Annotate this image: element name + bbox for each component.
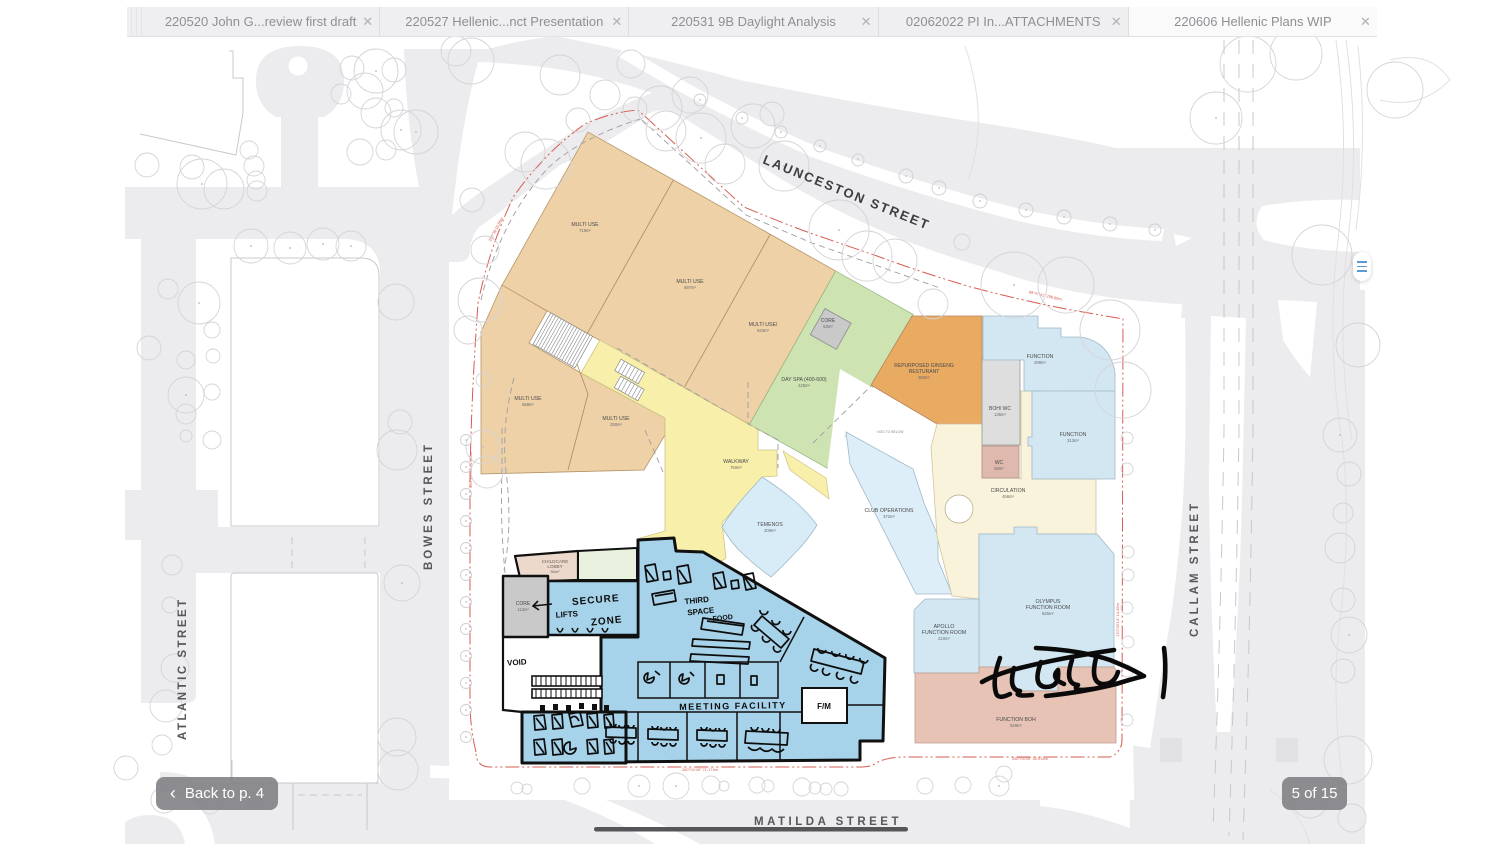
svg-text:CALLAM STREET: CALLAM STREET bbox=[1189, 501, 1201, 637]
svg-text:MATILDA STREET: MATILDA STREET bbox=[754, 816, 902, 828]
svg-text:53m²: 53m² bbox=[823, 324, 833, 329]
svg-text:425m²: 425m² bbox=[798, 383, 810, 388]
svg-text:210m²: 210m² bbox=[938, 636, 950, 641]
svg-text:528m²: 528m² bbox=[1010, 723, 1022, 728]
svg-text:260°04'45" 45.916m: 260°04'45" 45.916m bbox=[1012, 756, 1049, 761]
svg-text:209m²: 209m² bbox=[764, 528, 776, 533]
svg-text:BOWES STREET: BOWES STREET bbox=[423, 442, 435, 570]
svg-text:260°04'45" 71.174m: 260°04'45" 71.174m bbox=[682, 767, 719, 772]
svg-text:523m²: 523m² bbox=[757, 328, 769, 333]
svg-text:170°36'14" 14.05m: 170°36'14" 14.05m bbox=[1115, 602, 1120, 636]
svg-text:136m²: 136m² bbox=[994, 412, 1006, 417]
svg-text:MEETING FACILITY: MEETING FACILITY bbox=[679, 700, 787, 712]
svg-text:825m²: 825m² bbox=[1042, 611, 1054, 616]
svg-text:58m²: 58m² bbox=[994, 466, 1004, 471]
svg-text:372m²: 372m² bbox=[883, 514, 895, 519]
svg-text:56m²: 56m² bbox=[550, 569, 560, 574]
svg-text:719m²: 719m² bbox=[579, 228, 591, 233]
svg-text:ATLANTIC STREET: ATLANTIC STREET bbox=[177, 597, 189, 740]
svg-text:697m²: 697m² bbox=[684, 285, 696, 290]
svg-text:F/M: F/M bbox=[817, 702, 831, 711]
svg-text:313m²: 313m² bbox=[1067, 438, 1079, 443]
svg-text:456m²: 456m² bbox=[1002, 494, 1014, 499]
svg-text:380m²: 380m² bbox=[918, 375, 930, 380]
svg-text:250m²: 250m² bbox=[610, 422, 622, 427]
svg-text:LIFTS: LIFTS bbox=[555, 609, 578, 620]
svg-text:VOID TO BELOW: VOID TO BELOW bbox=[876, 430, 904, 434]
svg-text:750m²: 750m² bbox=[730, 465, 742, 470]
svg-text:558m²: 558m² bbox=[522, 402, 534, 407]
svg-text:113m²: 113m² bbox=[517, 607, 529, 612]
svg-text:298m²: 298m² bbox=[1034, 360, 1046, 365]
svg-text:VOID: VOID bbox=[507, 657, 527, 667]
